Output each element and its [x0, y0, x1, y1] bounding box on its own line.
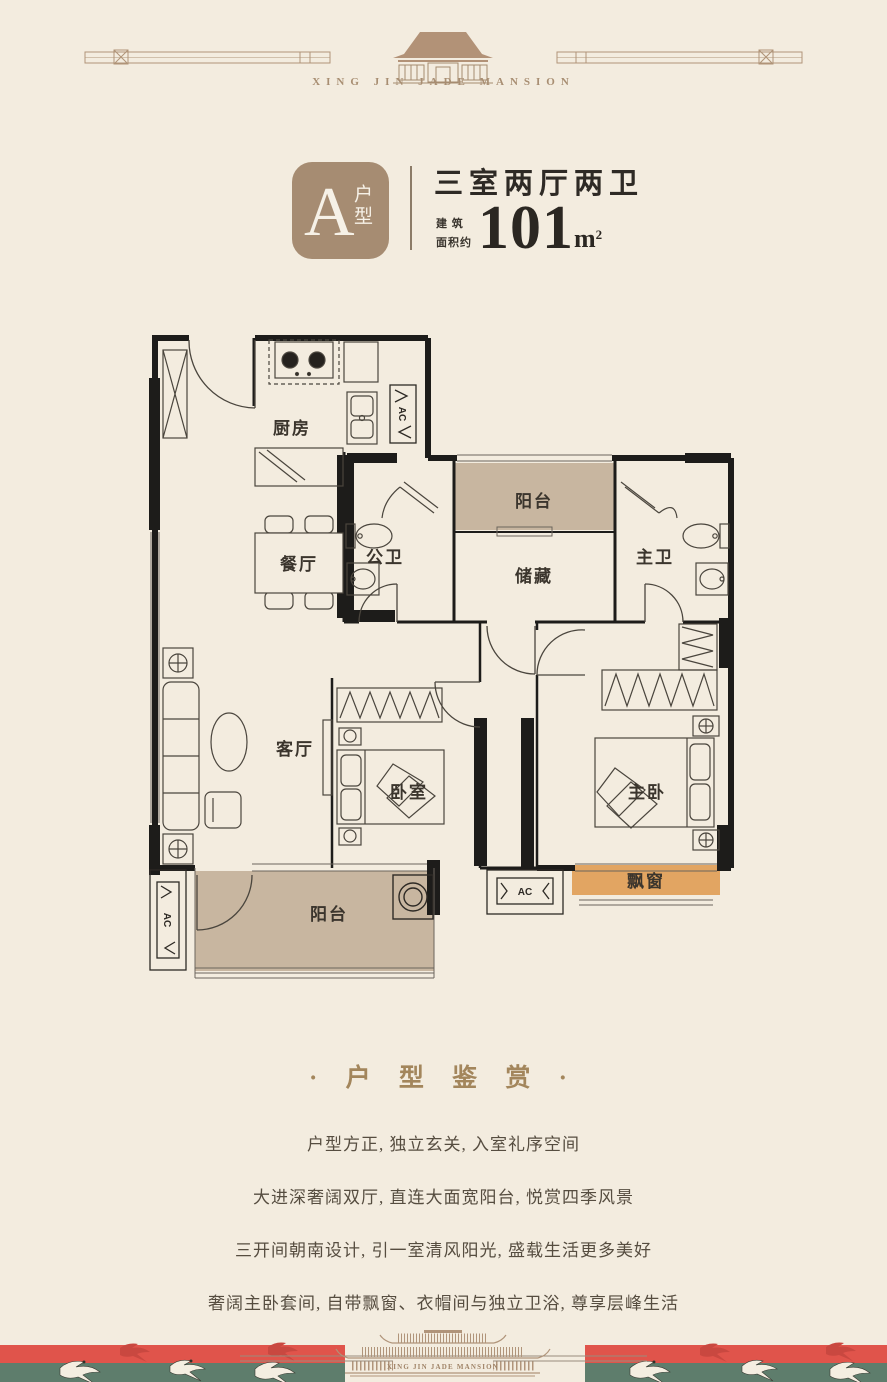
label-master-bedroom: 主卧 [628, 782, 666, 802]
master-bath-fixtures [621, 482, 729, 595]
guest-bath-fixtures [346, 482, 438, 595]
label-storage: 储藏 [515, 566, 553, 586]
label-dining: 餐厅 [280, 554, 318, 574]
area-info: 建 筑 面积约 101 m2 [436, 198, 656, 254]
footer-ornament: XING JIN JADE MANSION [0, 1322, 887, 1382]
service-balcony-window [457, 455, 612, 461]
header-right-bar [557, 50, 802, 64]
label-kitchen: 厨房 [273, 418, 311, 438]
area-label: 建 筑 面积约 [436, 215, 472, 250]
doors [189, 340, 683, 930]
label-bay-window: 飘窗 [627, 871, 665, 891]
footer-brand-english: XING JIN JADE MANSION [387, 1363, 499, 1371]
label-ac-bottom: AC [518, 887, 532, 898]
unit-type-badge: A 户型 [292, 162, 389, 259]
label-service-balcony: 阳台 [515, 491, 553, 511]
brand-name-english: XING JIN JADE MANSION [0, 76, 887, 88]
label-master-bath: 主卫 [636, 547, 674, 567]
description-line: 奢阔主卧套间, 自带飘窗、衣帽间与独立卫浴, 尊享层峰生活 [208, 1289, 679, 1314]
label-living: 客厅 [275, 739, 314, 759]
header-ornament [0, 0, 887, 110]
master-bedroom-furniture [595, 624, 719, 850]
label-ac-kitchen: AC [396, 407, 407, 421]
label-guest-bath: 公卫 [366, 548, 404, 567]
vertical-divider [410, 166, 412, 250]
area-unit: m2 [574, 222, 602, 252]
header-left-bar [85, 50, 330, 64]
living-furniture [163, 648, 247, 864]
label-bedroom: 卧室 [390, 782, 428, 802]
unit-suffix: 户型 [348, 184, 375, 228]
bedroom-furniture [323, 688, 444, 845]
floorplan-poster: XING JIN JADE MANSION A 户型 三室两厅两卫 建 筑 面积… [0, 0, 887, 1382]
description-line: 户型方正, 独立玄关, 入室礼序空间 [307, 1130, 580, 1155]
label-ac-left: AC [161, 913, 172, 927]
label-balcony: 阳台 [310, 904, 348, 924]
section-title: · 户 型 鉴 赏 · [0, 1058, 887, 1094]
entry-closet [163, 350, 187, 438]
palace-icon: XING JIN JADE MANSION [336, 1330, 550, 1376]
description-list: 户型方正, 独立玄关, 入室礼序空间 大进深奢阔双厅, 直连大面宽阳台, 悦赏四… [0, 1130, 887, 1314]
description-line: 大进深奢阔双厅, 直连大面宽阳台, 悦赏四季风景 [253, 1183, 634, 1208]
unit-letter: A [304, 164, 355, 261]
area-label-line2: 面积约 [436, 234, 472, 250]
description-line: 三开间朝南设计, 引一室清风阳光, 盛载生活更多美好 [235, 1236, 652, 1261]
kitchen-fixtures [255, 340, 378, 486]
area-label-line1: 建 筑 [436, 215, 472, 231]
floor-plan-drawing: 厨房 餐厅 公卫 阳台 储藏 主卫 客厅 卧室 主卧 阳台 飘窗 AC AC A… [147, 330, 747, 986]
area-number: 101 [478, 202, 574, 254]
